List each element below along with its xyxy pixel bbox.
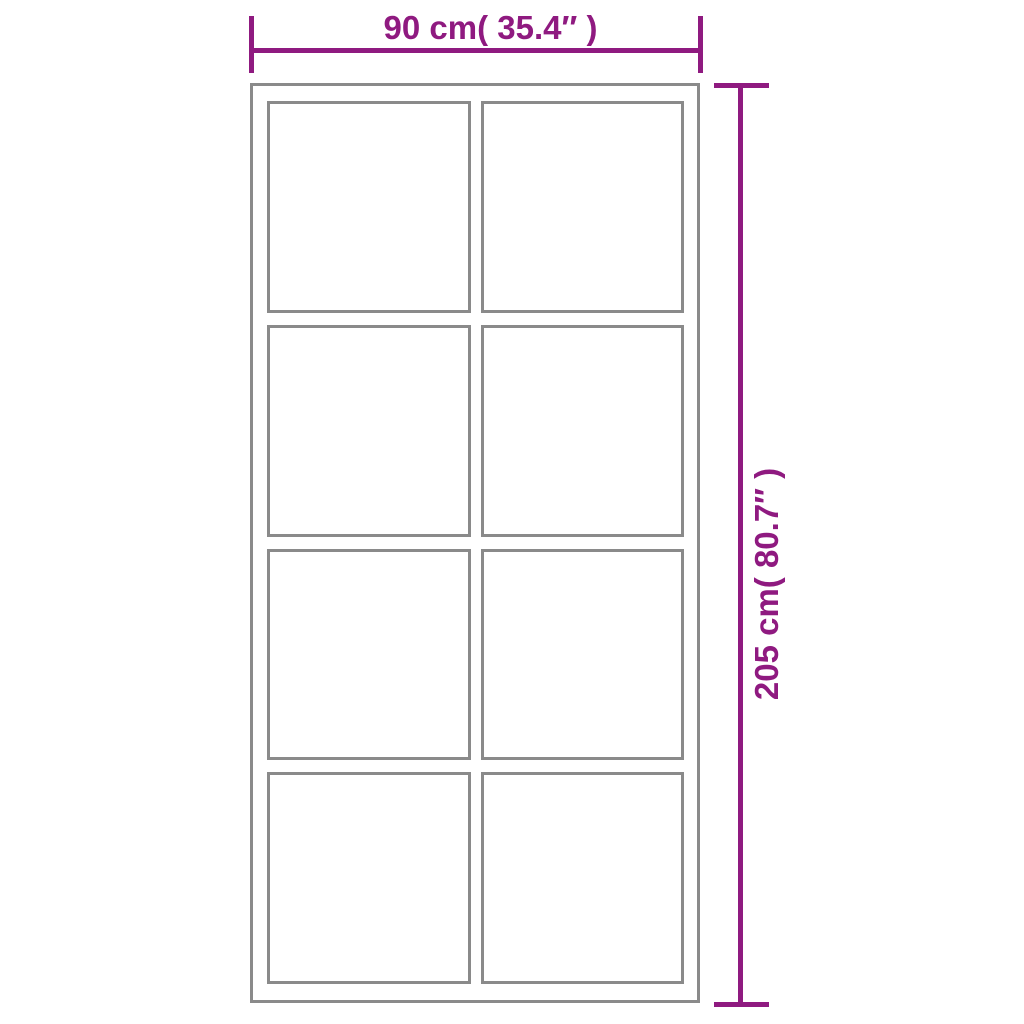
- width-dimension-left-tick: [249, 16, 254, 73]
- glass-panel-grid: [267, 101, 684, 984]
- door-dimension-diagram: 90 cm( 35.4″ ) 205 cm( 80.7″ ): [0, 0, 1024, 1024]
- glass-panel: [267, 101, 471, 313]
- glass-panel: [267, 549, 471, 761]
- door-frame: [250, 83, 700, 1003]
- glass-panel: [481, 772, 685, 984]
- glass-panel: [481, 325, 685, 537]
- width-dimension-label: 90 cm( 35.4″ ): [264, 10, 717, 46]
- glass-panel: [481, 549, 685, 761]
- height-dimension-label: 205 cm( 80.7″ ): [749, 468, 785, 700]
- glass-panel: [267, 325, 471, 537]
- width-dimension-line: [250, 48, 703, 53]
- glass-panel: [267, 772, 471, 984]
- glass-panel: [481, 101, 685, 313]
- height-dimension-line: [738, 85, 743, 1005]
